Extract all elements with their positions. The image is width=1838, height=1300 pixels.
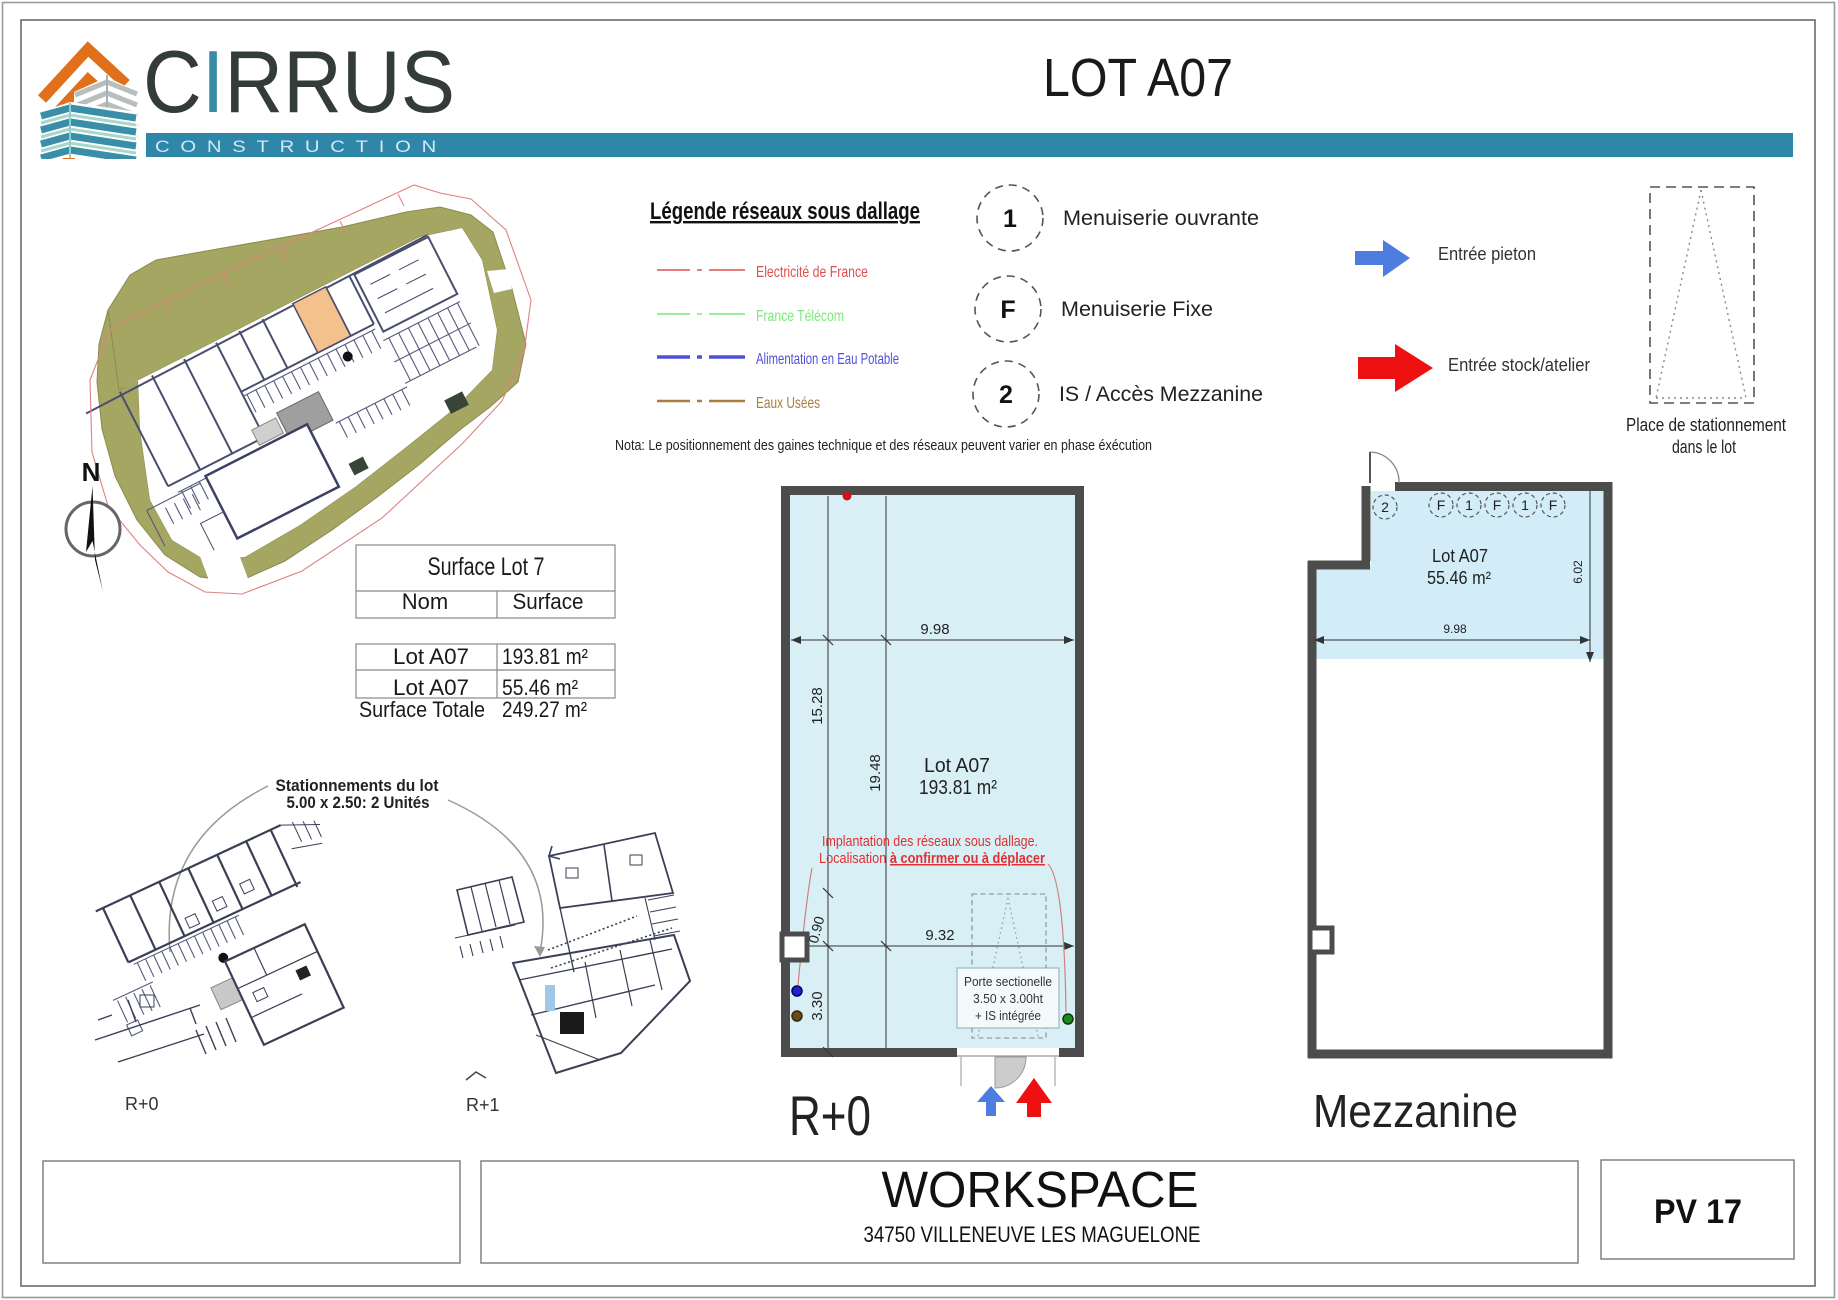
svg-text:Lot A07: Lot A07 xyxy=(393,644,469,669)
svg-text:Entrée stock/atelier: Entrée stock/atelier xyxy=(1448,355,1590,375)
svg-text:Surface Totale: Surface Totale xyxy=(359,697,485,722)
svg-text:Nota: Le positionnement des ga: Nota: Le positionnement des gaines techn… xyxy=(615,437,1152,454)
svg-text:CONSTRUCTION: CONSTRUCTION xyxy=(155,137,447,156)
svg-text:9.32: 9.32 xyxy=(925,927,954,944)
svg-text:Lot A07: Lot A07 xyxy=(1432,546,1488,566)
svg-text:F: F xyxy=(1493,497,1502,513)
svg-text:1: 1 xyxy=(1465,497,1473,513)
svg-text:Mezzanine: Mezzanine xyxy=(1313,1085,1518,1137)
svg-text:2: 2 xyxy=(999,381,1013,409)
svg-text:Eaux Usées: Eaux Usées xyxy=(756,395,820,412)
svg-text:55.46 m²: 55.46 m² xyxy=(1427,568,1491,588)
svg-text:3.30: 3.30 xyxy=(809,991,826,1020)
svg-text:249.27 m²: 249.27 m² xyxy=(502,697,587,722)
svg-text:9.98: 9.98 xyxy=(1443,622,1467,636)
svg-text:Surface Lot 7: Surface Lot 7 xyxy=(428,553,545,581)
svg-text:IS / Accès Mezzanine: IS / Accès Mezzanine xyxy=(1059,383,1263,406)
svg-text:R+0: R+0 xyxy=(789,1084,871,1147)
svg-text:Nom: Nom xyxy=(402,589,448,614)
svg-text:Menuiserie ouvrante: Menuiserie ouvrante xyxy=(1063,207,1259,230)
svg-text:Electricité de France: Electricité de France xyxy=(756,264,868,281)
svg-text:F: F xyxy=(1437,497,1446,513)
svg-text:WORKSPACE: WORKSPACE xyxy=(882,1161,1199,1218)
svg-text:193.81 m²: 193.81 m² xyxy=(502,644,588,669)
svg-text:Alimentation en Eau Potable: Alimentation en Eau Potable xyxy=(756,351,899,368)
svg-text:1: 1 xyxy=(1003,205,1017,233)
svg-text:34750 VILLENEUVE LES MAGUELONE: 34750 VILLENEUVE LES MAGUELONE xyxy=(864,1222,1201,1247)
svg-text:5.00 x 2.50: 2 Unités: 5.00 x 2.50: 2 Unités xyxy=(287,793,430,812)
svg-text:Légende réseaux sous dallage: Légende réseaux sous dallage xyxy=(650,198,920,225)
svg-text:193.81 m²: 193.81 m² xyxy=(919,777,997,799)
svg-text:1: 1 xyxy=(1521,497,1529,513)
svg-text:Entrée pieton: Entrée pieton xyxy=(1438,244,1536,264)
svg-text:6.02: 6.02 xyxy=(1571,560,1585,584)
svg-text:LOT A07: LOT A07 xyxy=(1043,48,1233,108)
svg-text:R+1: R+1 xyxy=(466,1095,500,1115)
svg-text:3.50 x 3.00ht: 3.50 x 3.00ht xyxy=(973,991,1043,1006)
svg-text:9.98: 9.98 xyxy=(920,621,949,638)
svg-text:Place de stationnement: Place de stationnement xyxy=(1626,415,1786,435)
svg-text:Porte sectionelle: Porte sectionelle xyxy=(964,974,1052,989)
svg-text:+ IS intégrée: + IS intégrée xyxy=(975,1008,1041,1023)
svg-text:CIRRUS: CIRRUS xyxy=(143,32,455,131)
svg-text:F: F xyxy=(1000,296,1015,324)
svg-text:Implantation des réseaux sous: Implantation des réseaux sous dallage. xyxy=(822,833,1038,850)
svg-text:Localisation à confirmer ou à: Localisation à confirmer ou à déplacer xyxy=(819,850,1045,867)
svg-text:Menuiserie Fixe: Menuiserie Fixe xyxy=(1061,298,1213,321)
svg-text:Surface: Surface xyxy=(513,589,584,614)
svg-text:France Télécom: France Télécom xyxy=(756,308,844,325)
svg-text:N: N xyxy=(82,457,101,487)
svg-text:R+0: R+0 xyxy=(125,1094,159,1114)
svg-text:2: 2 xyxy=(1381,499,1389,515)
svg-text:Lot A07: Lot A07 xyxy=(924,755,990,777)
svg-text:19.48: 19.48 xyxy=(867,754,884,792)
svg-text:15.28: 15.28 xyxy=(809,687,826,725)
svg-text:PV 17: PV 17 xyxy=(1654,1193,1742,1231)
svg-text:dans le lot: dans le lot xyxy=(1672,437,1736,457)
svg-text:F: F xyxy=(1549,497,1558,513)
